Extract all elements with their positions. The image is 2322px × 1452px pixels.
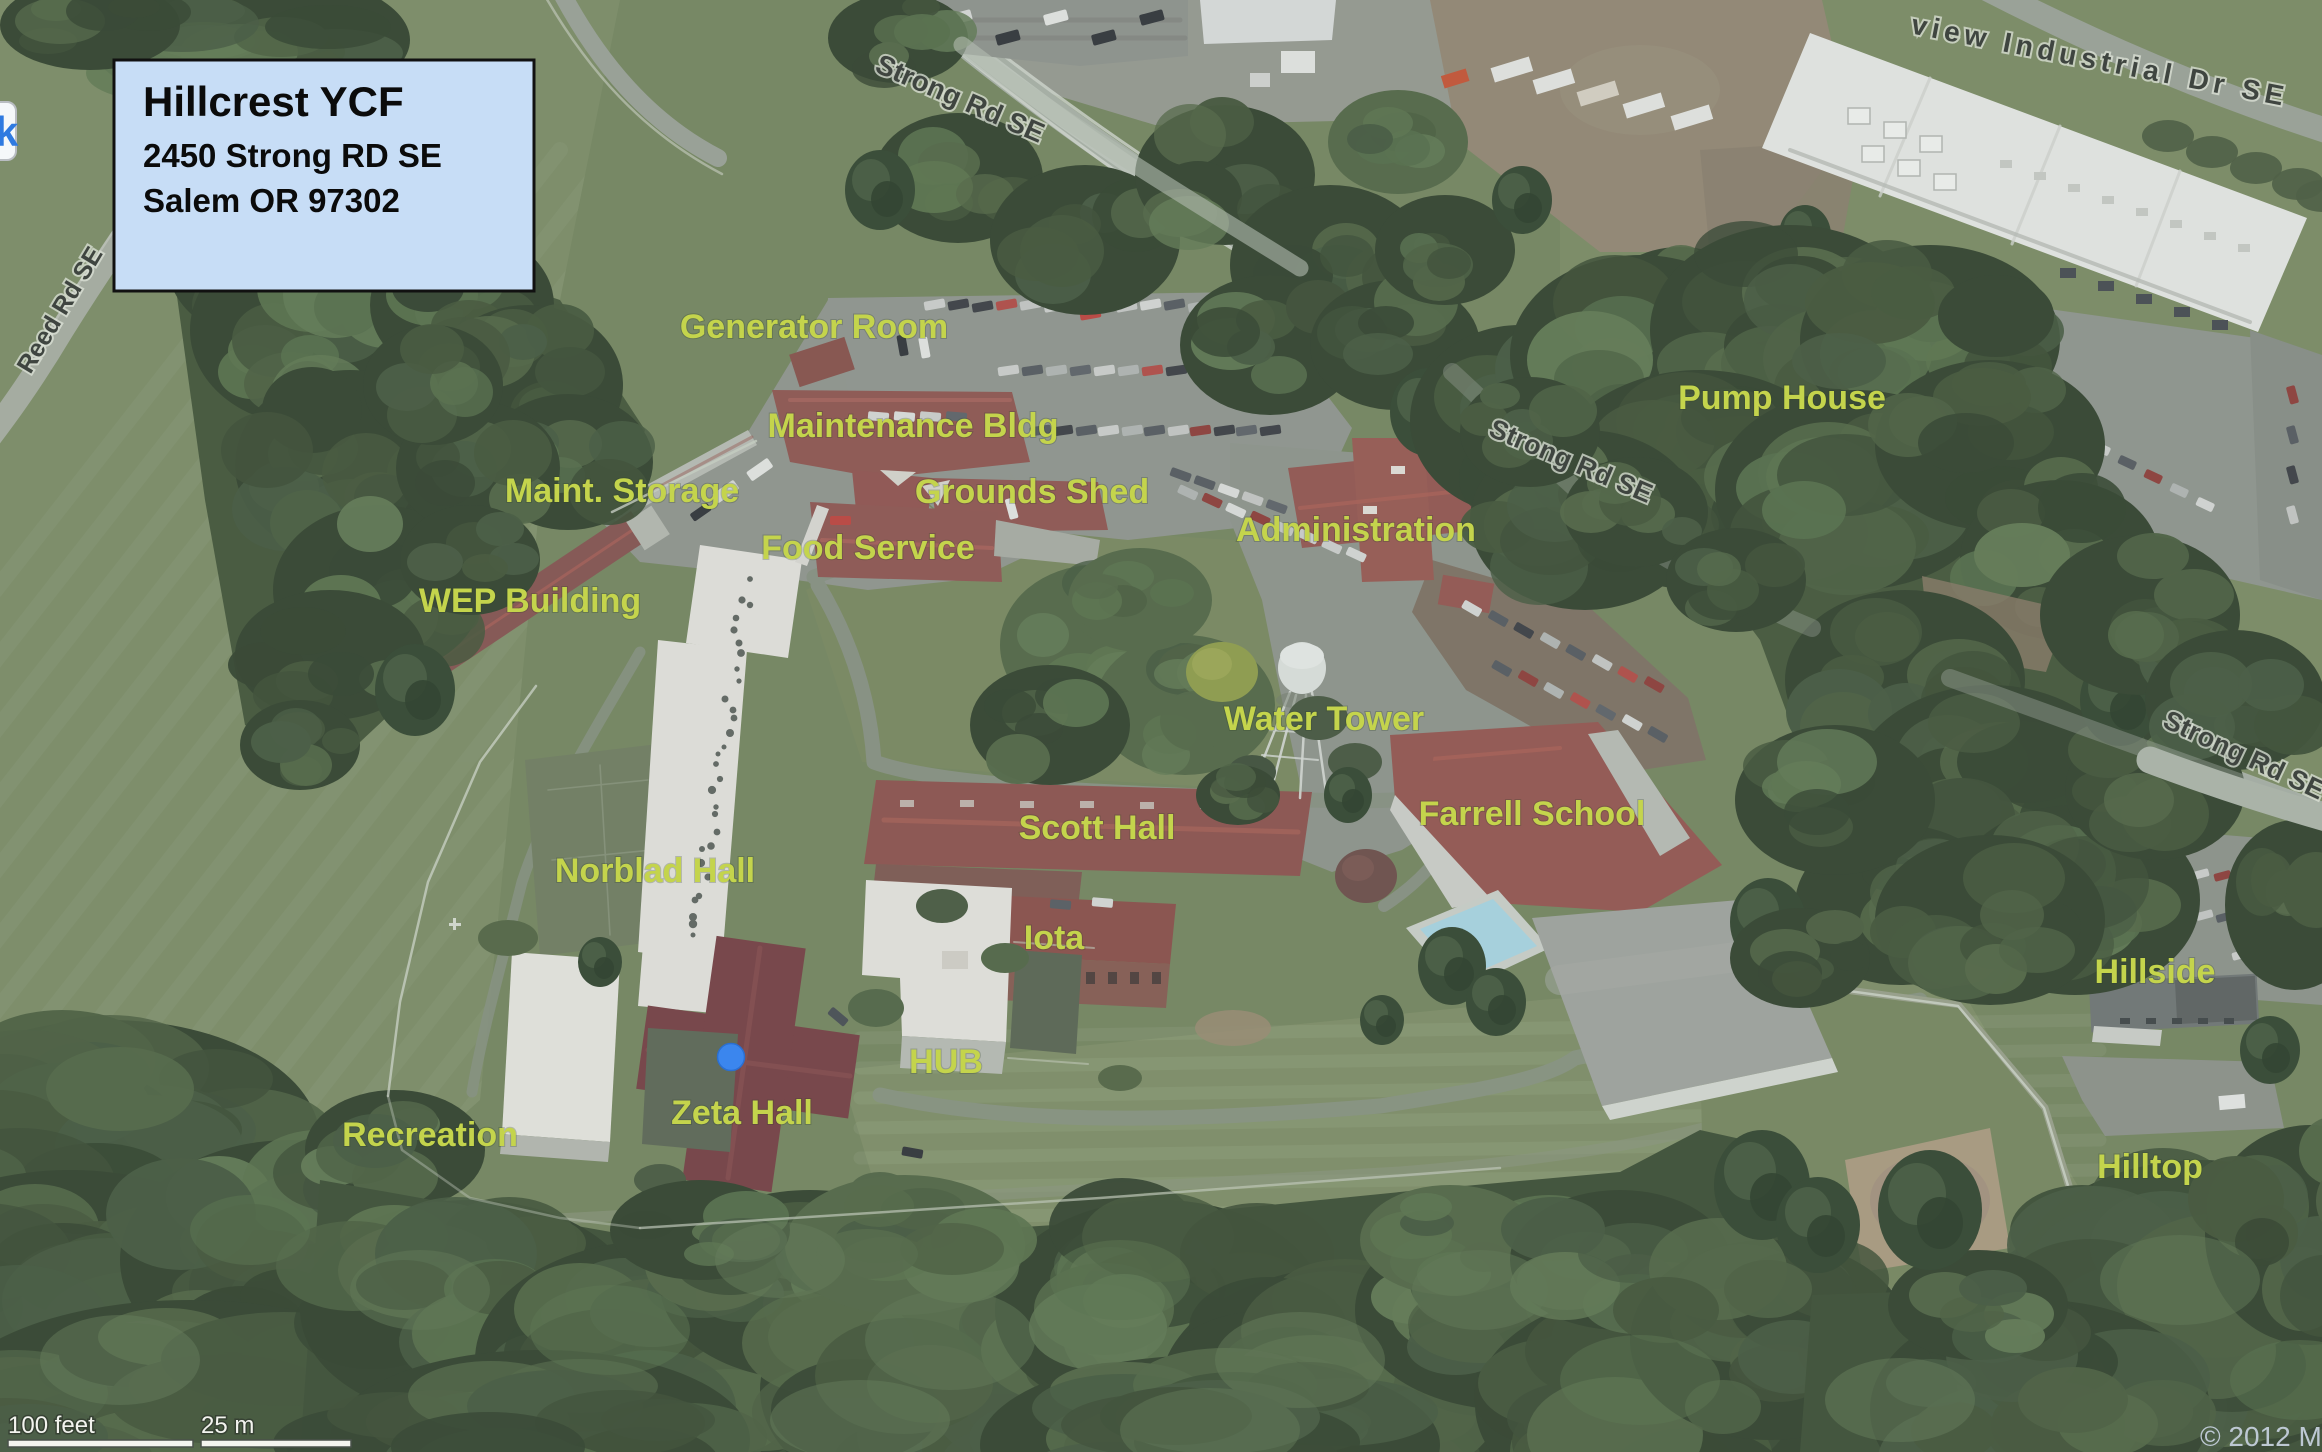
svg-text:WEP Building: WEP Building (419, 582, 641, 620)
svg-text:Iota: Iota (1024, 919, 1086, 957)
svg-text:Pump House: Pump House (1678, 379, 1886, 417)
svg-text:Norblad Hall: Norblad Hall (555, 852, 755, 890)
svg-text:Grounds Shed: Grounds Shed (915, 473, 1149, 511)
svg-text:25 m: 25 m (201, 1412, 254, 1439)
svg-text:Hillcrest YCF: Hillcrest YCF (143, 78, 404, 125)
svg-text:Scott Hall: Scott Hall (1019, 809, 1176, 847)
svg-text:© 2012 Micro: © 2012 Micro (2200, 1421, 2322, 1452)
svg-text:Recreation: Recreation (342, 1116, 518, 1154)
svg-text:HUB: HUB (909, 1043, 983, 1081)
svg-text:Salem OR 97302: Salem OR 97302 (143, 182, 400, 219)
svg-text:Hillside: Hillside (2095, 953, 2216, 991)
svg-text:Administration: Administration (1236, 511, 1476, 549)
svg-text:Water Tower: Water Tower (1224, 700, 1424, 738)
svg-text:100 feet: 100 feet (8, 1412, 95, 1439)
svg-text:Farrell School: Farrell School (1419, 795, 1646, 833)
svg-text:Maintenance Bldg: Maintenance Bldg (768, 407, 1059, 445)
svg-text:Hilltop: Hilltop (2097, 1148, 2203, 1186)
svg-text:2450 Strong RD SE: 2450 Strong RD SE (143, 137, 442, 174)
svg-text:Zeta Hall: Zeta Hall (671, 1094, 813, 1132)
svg-text:Generator Room: Generator Room (680, 308, 948, 346)
svg-text:Maint. Storage: Maint. Storage (505, 472, 739, 510)
svg-text:k: k (0, 108, 19, 155)
svg-text:Food Service: Food Service (761, 529, 975, 567)
